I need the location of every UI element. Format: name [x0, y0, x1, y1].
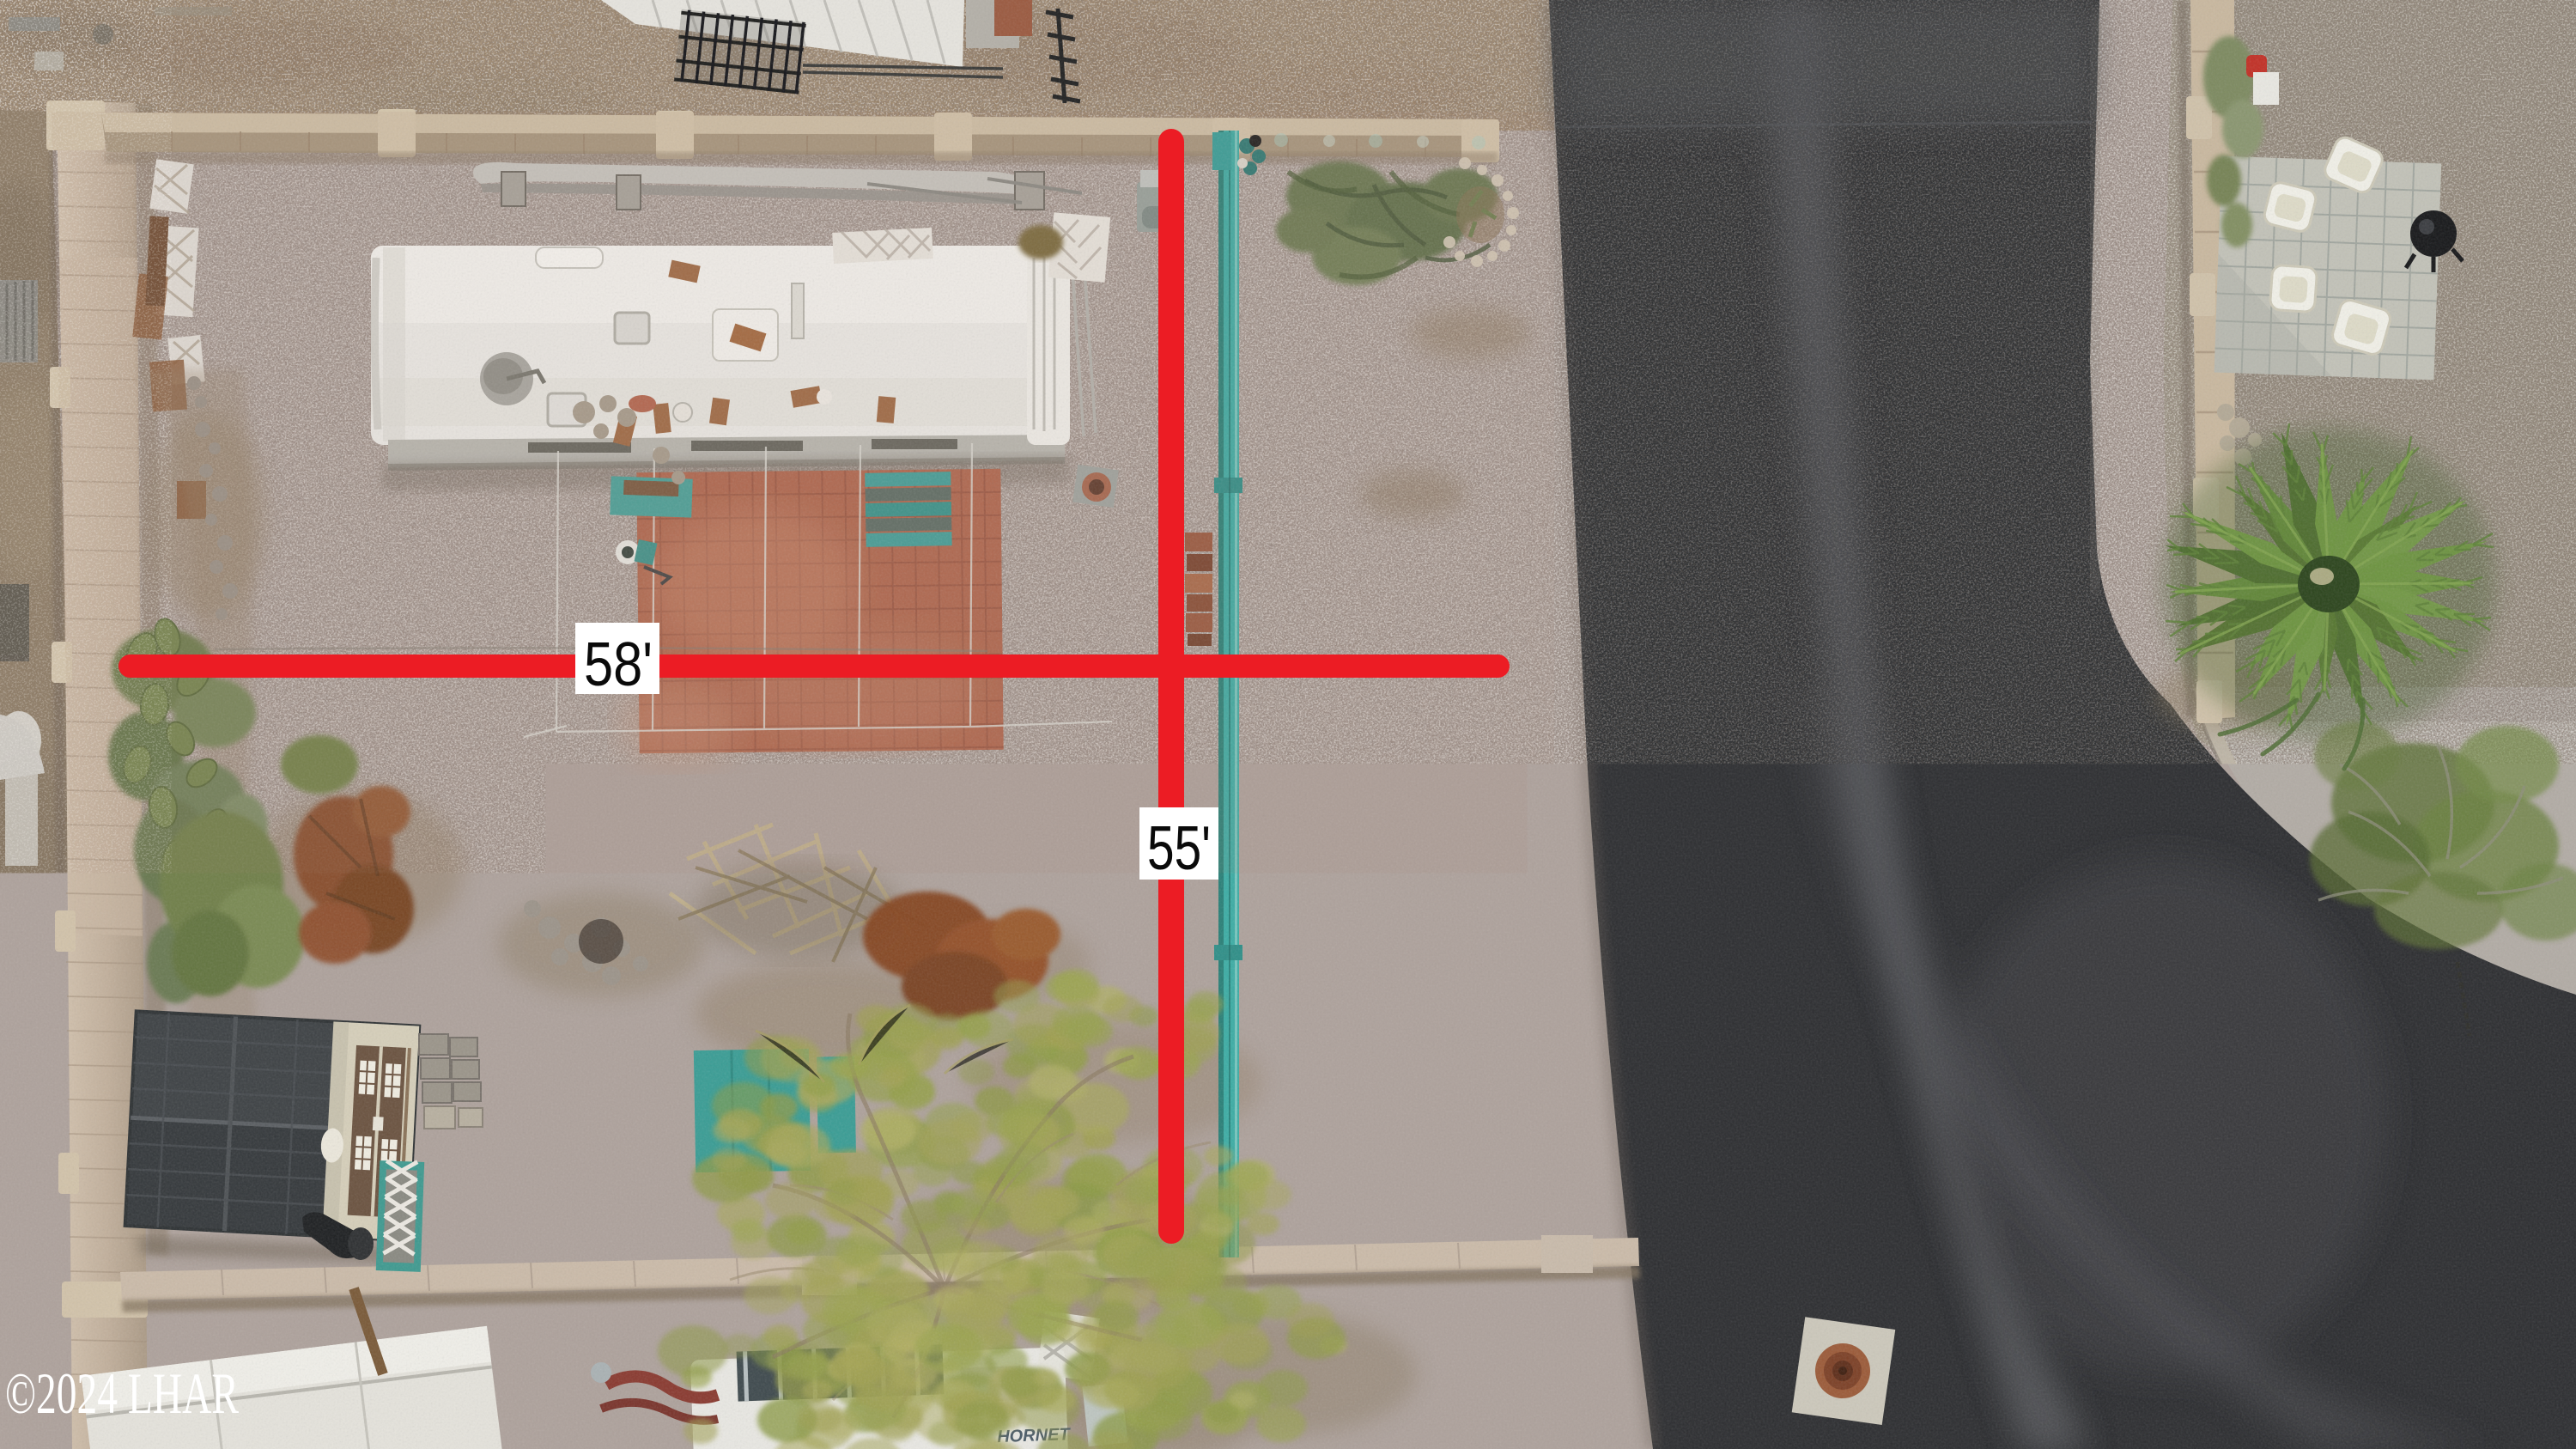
svg-text:55': 55': [1147, 814, 1211, 883]
svg-text:58': 58': [584, 630, 653, 699]
svg-text:©2024 LHAR: ©2024 LHAR: [5, 1361, 239, 1426]
